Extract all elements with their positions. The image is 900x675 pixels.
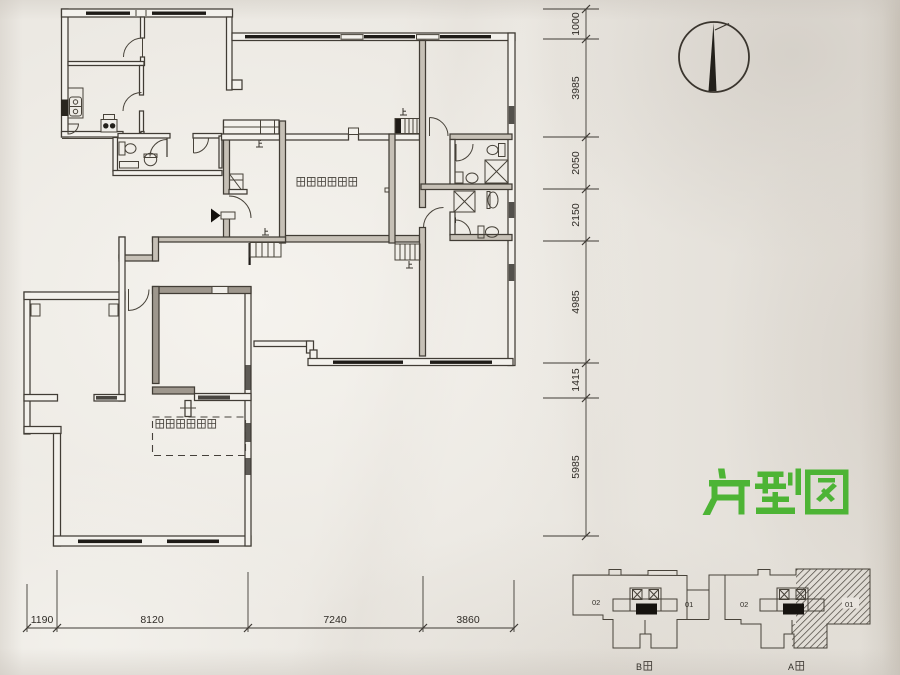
svg-text:1415: 1415 <box>570 368 582 392</box>
svg-text:4985: 4985 <box>570 290 582 314</box>
svg-text:3985: 3985 <box>570 76 582 100</box>
svg-text:1000: 1000 <box>570 12 582 36</box>
svg-text:2050: 2050 <box>570 151 582 175</box>
svg-text:2150: 2150 <box>570 203 582 227</box>
svg-text:B: B <box>636 662 642 672</box>
svg-text:8120: 8120 <box>140 614 164 626</box>
svg-text:1190: 1190 <box>31 614 54 626</box>
svg-text:A: A <box>788 662 794 672</box>
svg-text:01: 01 <box>685 600 693 609</box>
svg-text:02: 02 <box>592 598 600 607</box>
svg-text:3860: 3860 <box>456 614 480 626</box>
svg-text:02: 02 <box>740 600 748 609</box>
svg-text:01: 01 <box>845 600 853 609</box>
svg-text:5985: 5985 <box>570 455 582 479</box>
svg-text:7240: 7240 <box>323 614 347 626</box>
